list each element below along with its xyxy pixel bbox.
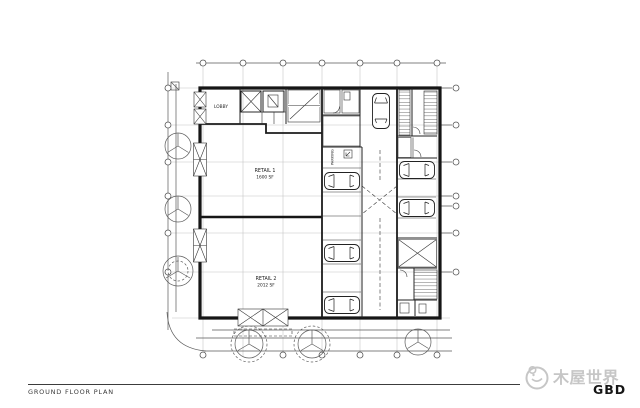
- watermark: 木屋世界 GBD: [520, 358, 638, 404]
- car-icon: [325, 173, 360, 190]
- service-rooms: [324, 90, 359, 113]
- retail1-name-label: RETAIL 1: [255, 168, 276, 174]
- retail2-area-label: 2012 SF: [257, 283, 275, 289]
- elevator-shaft-symbol: [263, 91, 284, 112]
- car-icon: [373, 94, 390, 129]
- stair-symbol-core: [288, 90, 320, 122]
- restroom-fixtures: [400, 303, 426, 313]
- main-entry-storefront: [234, 309, 292, 336]
- car-icon: [325, 297, 360, 314]
- accessible-parking-symbol: [344, 150, 352, 158]
- brand-gbd-label: GBD: [593, 382, 626, 397]
- tree-icon: [294, 326, 330, 362]
- footer-divider: [28, 384, 520, 385]
- tree-icon: [165, 133, 191, 159]
- parking-label: PARKING: [331, 149, 335, 165]
- brand-logo-icon: [522, 362, 552, 392]
- floor-plan-drawing: LOBBY RETAIL 1 1600 SF RETAIL 2 2012 SF …: [0, 0, 640, 408]
- retail2-name-label: RETAIL 2: [256, 276, 277, 282]
- drive-aisle-markings: [362, 150, 397, 310]
- retail1-area-label: 1600 SF: [256, 175, 274, 181]
- tree-icon: [231, 326, 267, 362]
- car-icon: [325, 245, 360, 262]
- elevator-symbol: [241, 91, 261, 112]
- lobby-label: LOBBY: [214, 104, 228, 110]
- ramp-hatch-2: [398, 138, 421, 159]
- drawing-sheet: LOBBY RETAIL 1 1600 SF RETAIL 2 2012 SF …: [0, 0, 640, 408]
- shaft-x-box: [399, 240, 437, 268]
- stair-symbol-right-bottom: [400, 270, 437, 299]
- tree-icon: [165, 196, 191, 222]
- car-icon: [400, 162, 435, 179]
- drawing-title: GROUND FLOOR PLAN: [28, 388, 114, 396]
- car-icon: [400, 200, 435, 217]
- stair-symbol-right-top: [399, 90, 437, 135]
- ramp-hatch: [323, 116, 360, 146]
